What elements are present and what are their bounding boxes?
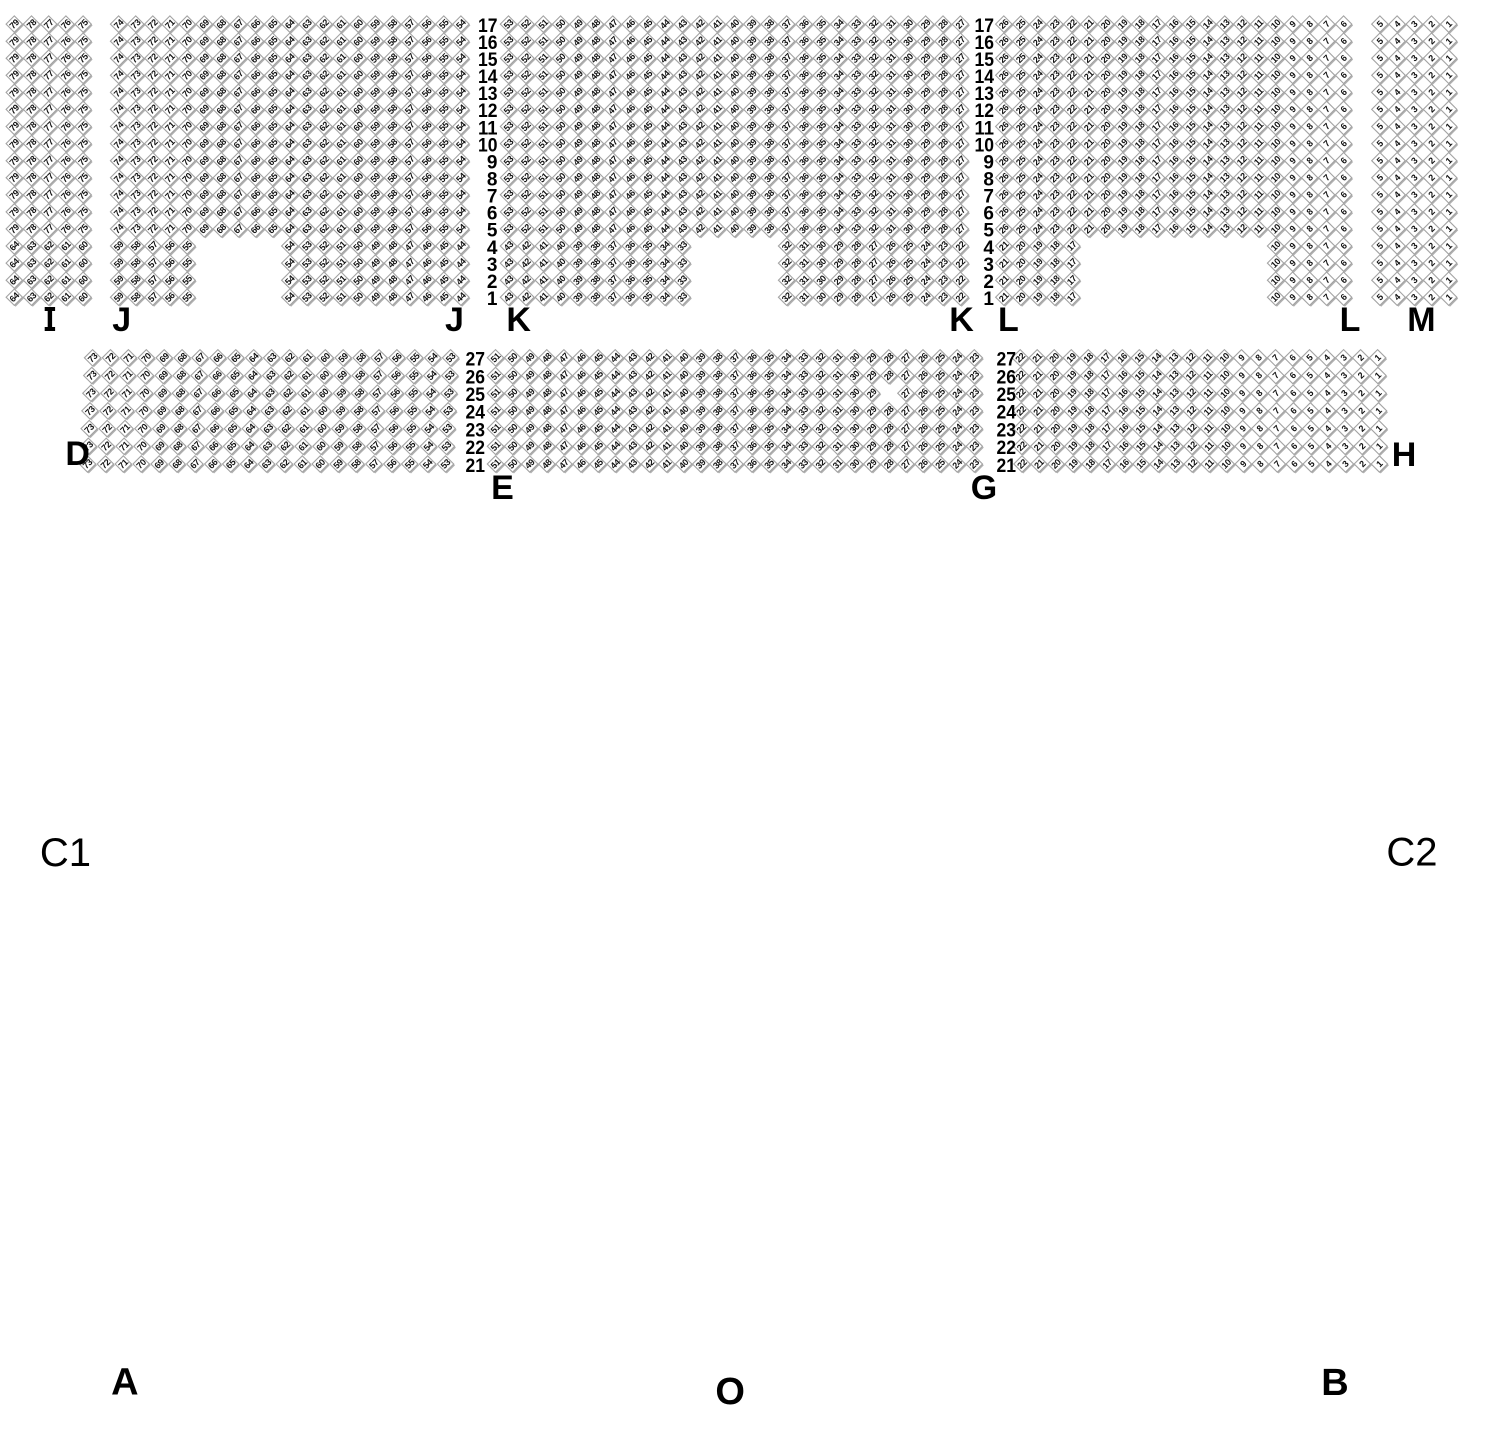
svg-text:1: 1 bbox=[487, 289, 498, 310]
svg-text:K: K bbox=[949, 301, 974, 339]
svg-text:H: H bbox=[1392, 436, 1417, 474]
svg-text:M: M bbox=[1407, 301, 1435, 339]
svg-text:G: G bbox=[971, 469, 997, 507]
svg-text:21: 21 bbox=[466, 456, 486, 477]
svg-text:K: K bbox=[506, 301, 531, 339]
svg-text:B: B bbox=[1321, 1362, 1348, 1404]
svg-text:L: L bbox=[1340, 301, 1361, 339]
svg-text:J: J bbox=[112, 301, 131, 339]
svg-text:E: E bbox=[491, 469, 514, 507]
svg-text:1: 1 bbox=[983, 289, 994, 310]
svg-text:C1: C1 bbox=[40, 831, 91, 875]
svg-text:C2: C2 bbox=[1386, 831, 1437, 875]
svg-text:D: D bbox=[65, 435, 90, 473]
svg-text:21: 21 bbox=[997, 456, 1017, 477]
svg-text:O: O bbox=[715, 1371, 745, 1413]
svg-text:A: A bbox=[111, 1361, 138, 1403]
svg-text:J: J bbox=[445, 301, 464, 339]
svg-text:L: L bbox=[998, 301, 1019, 339]
